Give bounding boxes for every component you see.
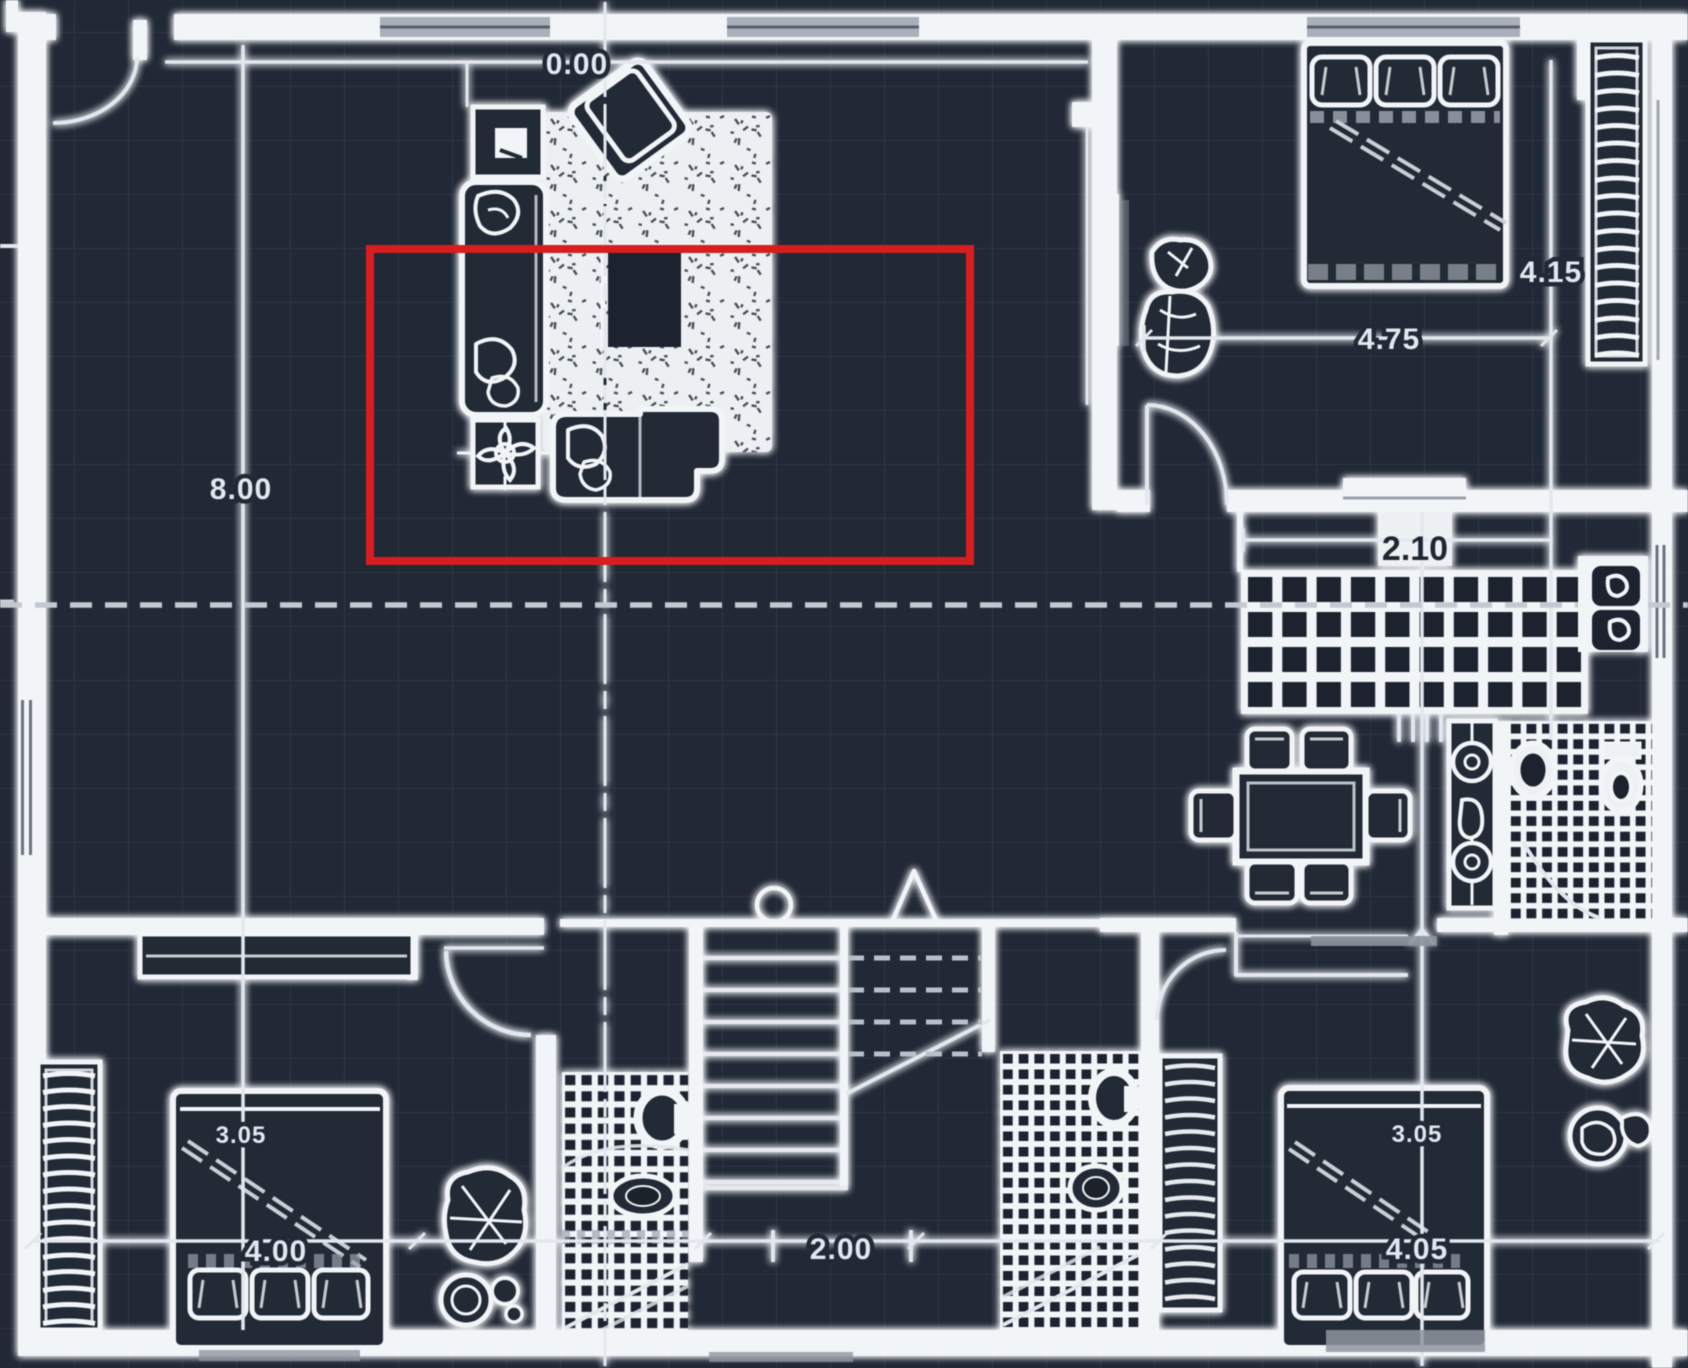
svg-text:4.15: 4.15 xyxy=(1520,256,1582,289)
svg-text:4.00: 4.00 xyxy=(245,1235,307,1268)
svg-text:3.05: 3.05 xyxy=(216,1122,267,1149)
svg-text:2.00: 2.00 xyxy=(810,1233,872,1266)
svg-text:3.05: 3.05 xyxy=(1392,1121,1443,1148)
svg-text:0.00: 0.00 xyxy=(546,48,608,81)
svg-text:2.10: 2.10 xyxy=(1382,530,1448,568)
svg-text:8.00: 8.00 xyxy=(210,473,272,506)
svg-text:4.05: 4.05 xyxy=(1386,1233,1448,1266)
svg-text:4.75: 4.75 xyxy=(1358,323,1420,356)
